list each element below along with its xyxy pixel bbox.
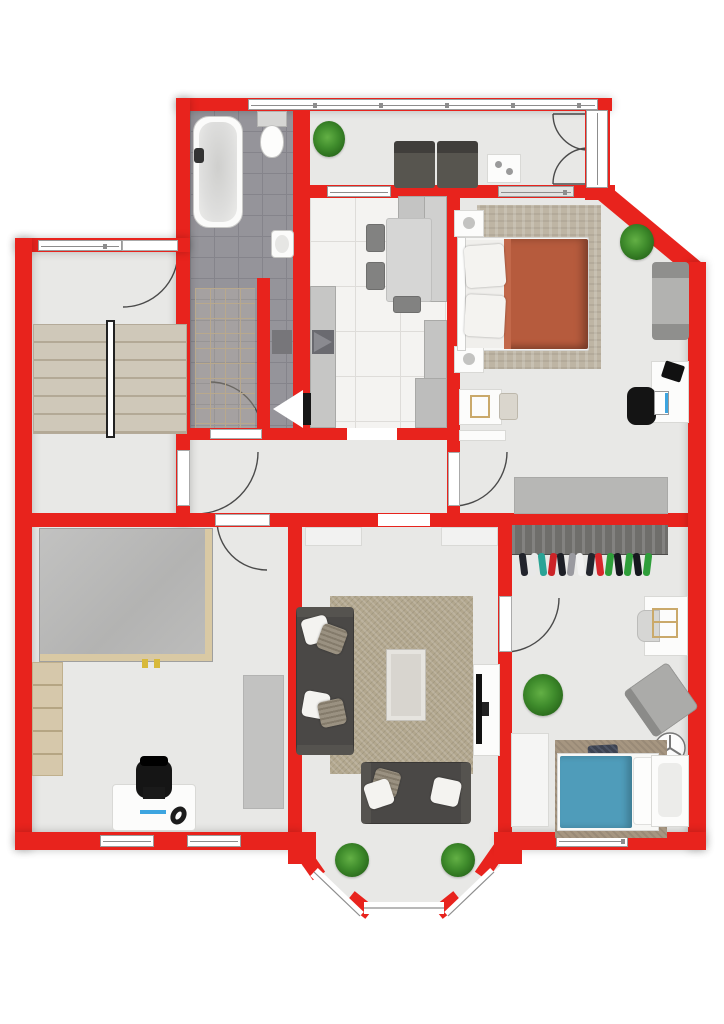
- kids-desk-tray-bar: [652, 621, 678, 623]
- bedroom-monitor-screen: [665, 393, 668, 413]
- clothing-item: [576, 553, 586, 577]
- bay-plant-left: [335, 843, 369, 877]
- office-shelf: [32, 662, 63, 776]
- clothing-item: [557, 553, 567, 577]
- dining-chair-3: [393, 296, 421, 313]
- bathtub-faucet: [194, 148, 204, 163]
- toilet-bowl: [260, 125, 284, 158]
- living-radiator-left: [305, 527, 362, 546]
- bedroom-door: [448, 452, 460, 506]
- kitchen-counter-corner: [415, 378, 447, 428]
- bathroom-sink-basin: [275, 235, 289, 253]
- bed-pillow-1: [464, 244, 507, 289]
- french-door-arc-bottom: [553, 148, 589, 184]
- clothing-item: [623, 553, 633, 577]
- lounge-chair: [652, 262, 689, 340]
- kids-desk-tray: [652, 608, 678, 638]
- clothing-item: [538, 553, 548, 577]
- living-room-opening: [378, 514, 430, 526]
- bathroom-door: [210, 429, 262, 439]
- kitchen-counter-right-lower: [424, 320, 447, 384]
- sofa-pillow-4: [317, 698, 348, 729]
- entry-door: [177, 450, 190, 506]
- appliance-front: [303, 393, 311, 425]
- office-large-table: [40, 529, 212, 661]
- nightstand-2-lamp: [463, 353, 475, 365]
- kids-loveseat-cushion: [658, 763, 682, 817]
- clothing-item: [585, 553, 595, 577]
- french-door-arc-top: [553, 114, 589, 150]
- office-rug: [243, 675, 284, 809]
- stairwell-door: [122, 240, 178, 251]
- wall-left-outer: [15, 238, 32, 850]
- bedroom-small-chair: [499, 393, 518, 420]
- dining-chair-2: [366, 262, 385, 290]
- kitchen-counter-left: [310, 286, 336, 428]
- table-handle-1: [142, 659, 148, 668]
- clothing-item: [566, 553, 576, 577]
- clothing-item: [528, 553, 538, 577]
- wall-bath-partition: [257, 278, 270, 428]
- dining-chair-1: [366, 224, 385, 252]
- french-door-frame: [586, 110, 608, 188]
- kids-bed-blanket: [560, 756, 632, 828]
- floor-plan: [0, 0, 724, 1024]
- bedroom-small-table-tray: [470, 395, 490, 418]
- sunroom-side-table: [487, 154, 521, 183]
- clothing-item: [614, 553, 624, 577]
- bed-blanket-fold: [504, 239, 511, 349]
- clothing-item: [519, 553, 529, 577]
- clothing-item: [595, 553, 605, 577]
- window-office-bottom-1: [100, 835, 154, 847]
- bath-corner-cabinet: [272, 330, 292, 354]
- clothing-item: [633, 553, 643, 577]
- kids-door: [499, 596, 512, 652]
- entry-door-arc: [196, 452, 258, 514]
- window-top-band: [248, 99, 598, 110]
- nightstand-1-lamp: [463, 217, 475, 229]
- office-monitor: [143, 787, 165, 799]
- cup-2: [506, 168, 513, 175]
- kids-plant: [523, 674, 563, 716]
- sunroom-armchair-1: [394, 141, 435, 188]
- bedroom-radiator: [459, 430, 506, 441]
- window-stairwell-top: [38, 240, 122, 251]
- bath-mat: [195, 288, 255, 428]
- bed-blanket: [504, 239, 588, 349]
- clothing-item: [604, 553, 614, 577]
- bed-pillow-2: [464, 294, 506, 338]
- window-kitchen-sunroom: [327, 186, 391, 197]
- sunroom-armchair-2: [437, 141, 478, 188]
- bedroom-plant: [620, 224, 654, 260]
- wall-bay-post-left: [288, 832, 316, 864]
- window-office-bottom-2: [187, 835, 241, 847]
- table-handle-2: [154, 659, 160, 668]
- sunroom-plant: [313, 121, 345, 157]
- office-door: [215, 514, 270, 526]
- office-door-arc: [217, 520, 267, 570]
- wall-bay-post-right: [494, 832, 522, 864]
- dining-table: [386, 218, 432, 302]
- cup-1: [495, 161, 502, 168]
- office-chair-back: [140, 756, 168, 766]
- clothing-item: [547, 553, 557, 577]
- bay-plant-right: [441, 843, 475, 877]
- kitchen-opening: [347, 428, 397, 440]
- living-radiator-right: [441, 527, 498, 546]
- wall-bottom-left: [15, 832, 302, 850]
- wall-right-outer: [688, 262, 706, 850]
- bedroom-office-chair: [627, 387, 656, 425]
- clothes-rack: [512, 525, 668, 587]
- stairwell-door-arc: [123, 252, 178, 307]
- tv-bracket: [482, 702, 489, 716]
- wall-bath-kitchen: [293, 98, 310, 440]
- bathtub-basin: [199, 122, 237, 222]
- kids-cabinet: [511, 733, 549, 827]
- bedroom-sideboard: [514, 477, 668, 514]
- wall-living-kids: [498, 513, 512, 850]
- stairs-railing: [106, 320, 115, 438]
- clothing-item: [642, 553, 652, 577]
- kids-door-arc: [505, 598, 559, 652]
- office-keyboard: [140, 810, 166, 814]
- coffee-table: [387, 650, 425, 720]
- window-bedroom-sunroom: [498, 186, 574, 197]
- sofa-pillow-7: [430, 776, 463, 807]
